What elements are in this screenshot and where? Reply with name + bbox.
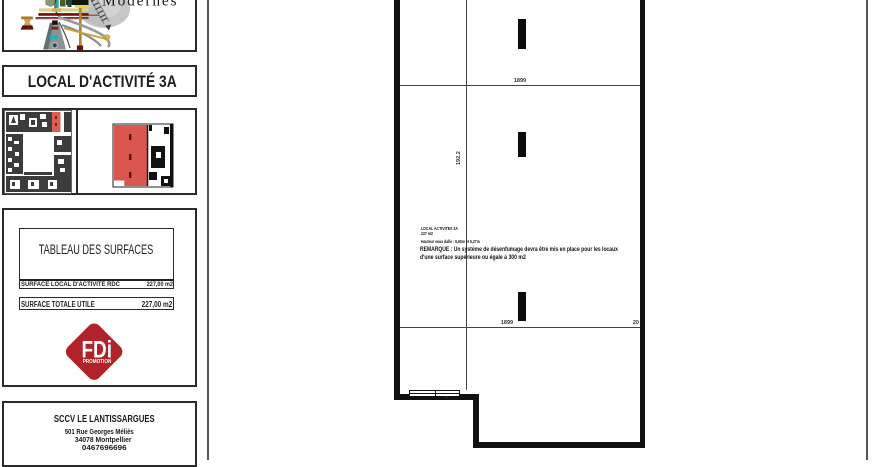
svg-text:PROMOTION: PROMOTION — [83, 359, 112, 365]
svg-text:Modernes: Modernes — [102, 0, 178, 10]
